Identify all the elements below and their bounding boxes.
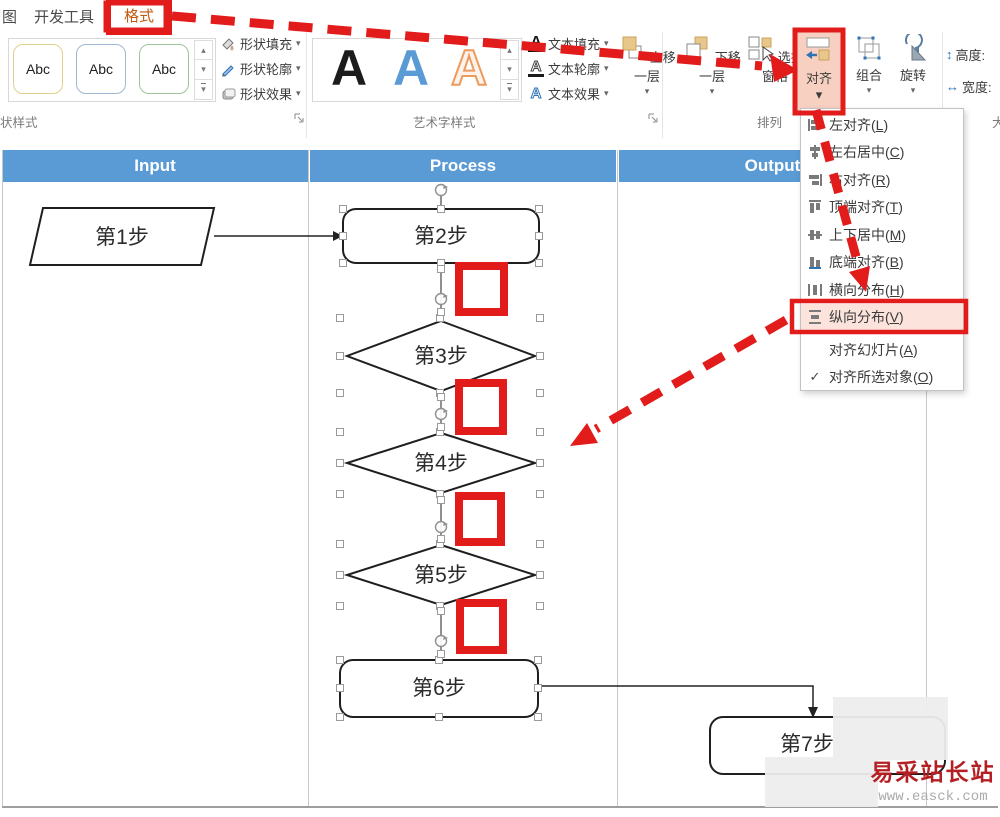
powerpoint-window: 图 开发工具 格式 Abc Abc Abc ▴ ▾ ▾ 形状填充▾ 形状轮廓▾ xyxy=(0,0,1000,817)
flow-shape-step5[interactable]: 第5步 xyxy=(347,545,535,605)
flow-shape-step4[interactable]: 第4步 xyxy=(347,433,535,493)
menu-item-align-top[interactable]: 顶端对齐(T) xyxy=(801,194,963,222)
flow-shape-step1[interactable]: 第1步 xyxy=(30,208,214,265)
menu-item-align-right[interactable]: 右对齐(R) xyxy=(801,166,963,194)
menu-item-align-left[interactable]: 左对齐(L) xyxy=(801,111,963,139)
svg-text:第2步: 第2步 xyxy=(414,225,468,248)
connector-step6-step7[interactable] xyxy=(538,686,818,718)
flow-shape-step2[interactable]: 第2步 xyxy=(343,209,539,263)
svg-text:第4步: 第4步 xyxy=(414,452,468,475)
censor-box xyxy=(833,697,948,760)
align-center-icon xyxy=(807,144,823,160)
menu-item-align-bottom[interactable]: 底端对齐(B) xyxy=(801,249,963,277)
align-middle-icon xyxy=(807,227,823,243)
align-left-icon xyxy=(807,117,823,133)
menu-item-align-to-slide[interactable]: 对齐幻灯片(A) xyxy=(801,336,963,364)
svg-text:第5步: 第5步 xyxy=(414,564,468,587)
connector-step1-step2[interactable] xyxy=(214,231,343,241)
menu-item-distribute-vertical[interactable]: 纵向分布(V) xyxy=(801,304,963,332)
svg-text:第1步: 第1步 xyxy=(95,226,149,249)
menu-item-align-middle[interactable]: 上下居中(M) xyxy=(801,221,963,249)
align-bottom-icon xyxy=(807,254,823,270)
checkmark-icon: ✓ xyxy=(810,369,821,385)
svg-text:第3步: 第3步 xyxy=(414,345,468,368)
distribute-horizontal-icon xyxy=(807,282,823,298)
menu-item-align-center[interactable]: 左右居中(C) xyxy=(801,139,963,167)
flow-shape-step6[interactable]: 第6步 xyxy=(340,660,538,717)
align-top-icon xyxy=(807,199,823,215)
svg-text:第7步: 第7步 xyxy=(780,733,834,756)
watermark-title: 易采站长站 xyxy=(868,753,998,787)
menu-item-align-selected-objects[interactable]: ✓ 对齐所选对象(O) xyxy=(801,364,963,392)
menu-item-distribute-horizontal[interactable]: 横向分布(H) xyxy=(801,276,963,304)
watermark-url: www.easck.com xyxy=(868,789,998,805)
flow-shape-step3[interactable]: 第3步 xyxy=(347,321,535,391)
align-right-icon xyxy=(807,172,823,188)
align-dropdown-menu: 左对齐(L) 左右居中(C) 右对齐(R) 顶端对齐(T) 上下居中(M) 底端… xyxy=(800,108,964,391)
distribute-vertical-icon xyxy=(807,309,823,325)
censor-box xyxy=(765,757,878,807)
svg-text:第6步: 第6步 xyxy=(412,677,466,700)
